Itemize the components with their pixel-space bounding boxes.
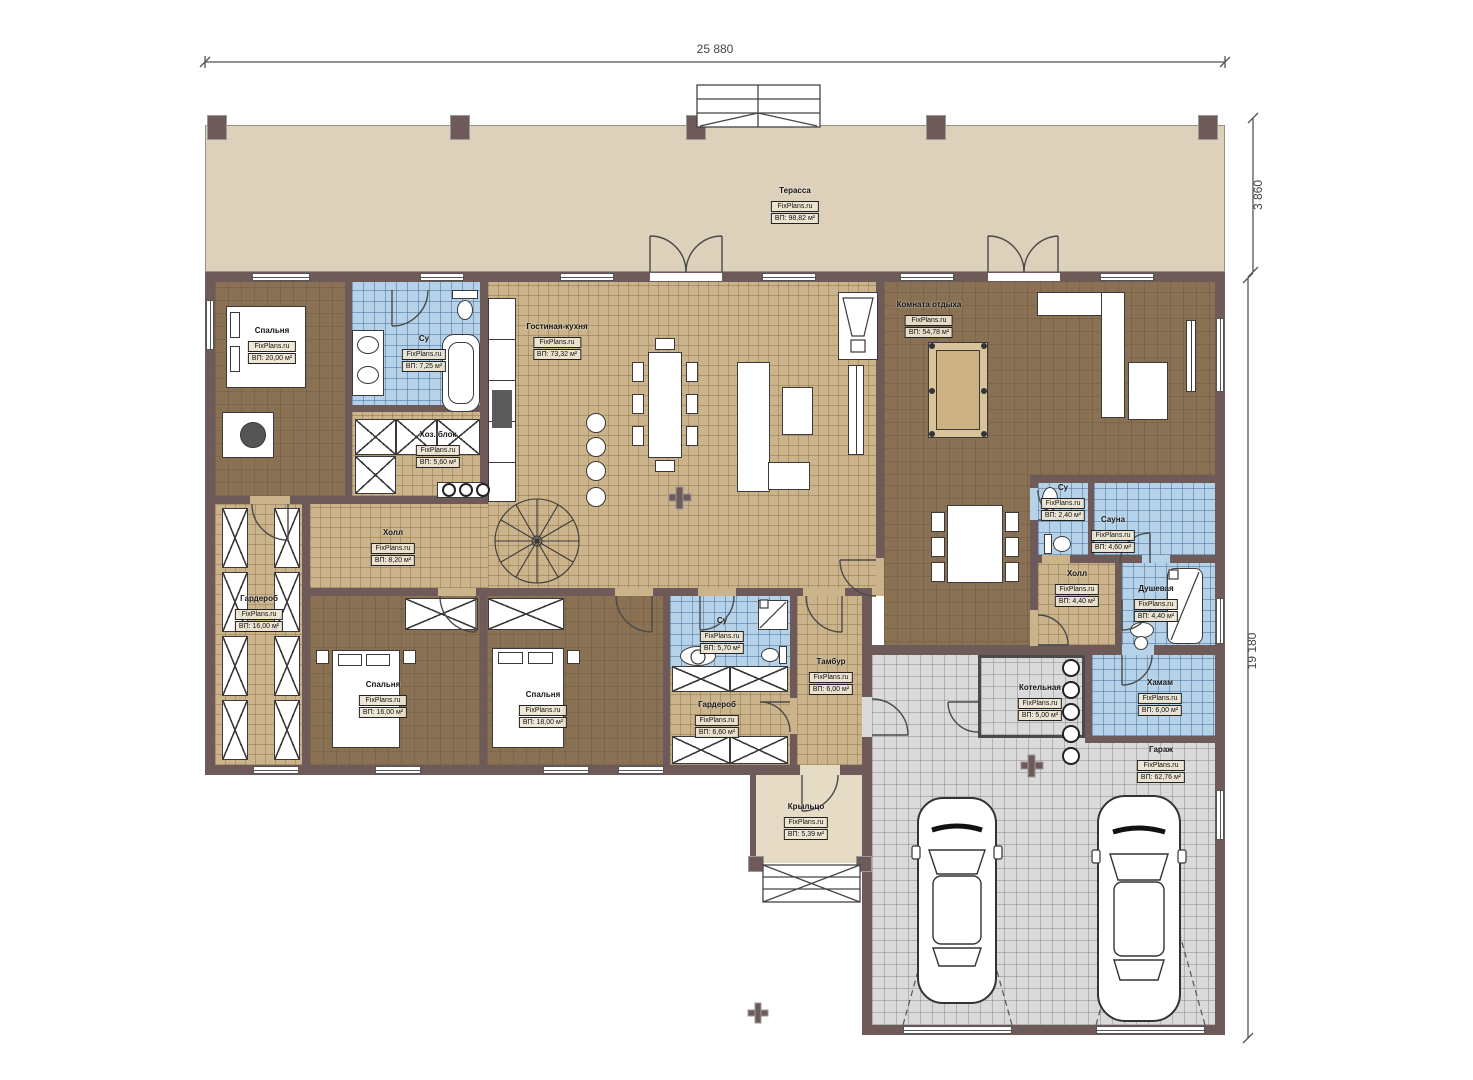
- pillow: [366, 654, 390, 666]
- room-label-wc-center: Су FixPlans.ru ВП: 5,70 м²: [700, 616, 744, 654]
- garage-door: [1096, 1026, 1205, 1034]
- room-info-box: FixPlans.ru ВП: 4,60 м²: [1091, 530, 1135, 553]
- brand-label: FixPlans.ru: [371, 543, 415, 554]
- chair: [1005, 562, 1019, 582]
- room-name: Су: [402, 334, 446, 343]
- room-area: ВП: 16,00 м²: [235, 621, 283, 632]
- room-name: Комната отдыха: [897, 300, 962, 309]
- brand-label: FixPlans.ru: [700, 631, 744, 642]
- pendant-light: [586, 487, 606, 507]
- garage-door: [903, 1026, 1012, 1034]
- room-area: ВП: 62,76 м²: [1137, 772, 1185, 783]
- chair: [1005, 512, 1019, 532]
- pendant-light: [586, 461, 606, 481]
- room-name: Душевая: [1134, 584, 1178, 593]
- wardrobe-cabinet: [730, 666, 788, 692]
- chair: [686, 362, 698, 382]
- room-info-box: FixPlans.ru ВП: 5,60 м²: [416, 445, 460, 468]
- room-label-wc-right: Су FixPlans.ru ВП: 2,40 м²: [1041, 483, 1085, 521]
- door-opening: [438, 588, 476, 596]
- brand-label: FixPlans.ru: [1041, 498, 1085, 509]
- wardrobe-cabinet: [222, 508, 248, 568]
- dimension-terrace-depth: 3 860: [1251, 173, 1265, 217]
- pendant-light: [586, 413, 606, 433]
- corner-sofa: [1101, 292, 1125, 418]
- wardrobe-cabinet: [274, 636, 300, 696]
- room-area: ВП: 98,82 м²: [771, 213, 819, 224]
- toilet-tank: [1044, 534, 1052, 554]
- terrace-door-opening: [988, 273, 1060, 281]
- brand-label: FixPlans.ru: [771, 201, 819, 212]
- room-info-box: FixPlans.ru ВП: 4,40 м²: [1134, 599, 1178, 622]
- room-label-utility: Хоз. блок FixPlans.ru ВП: 5,60 м²: [416, 430, 460, 468]
- window: [543, 766, 589, 774]
- room-info-box: FixPlans.ru ВП: 18,00 м²: [519, 705, 567, 728]
- brand-label: FixPlans.ru: [519, 705, 567, 716]
- room-area: ВП: 5,00 м²: [1018, 710, 1062, 721]
- chair: [686, 394, 698, 414]
- pendant-light: [586, 437, 606, 457]
- pillow: [528, 652, 553, 664]
- room-info-box: FixPlans.ru ВП: 5,70 м²: [700, 631, 744, 654]
- brand-label: FixPlans.ru: [784, 817, 828, 828]
- sink: [357, 336, 379, 354]
- room-name: Су: [1041, 483, 1085, 492]
- room-area: ВП: 7,25 м²: [402, 361, 446, 372]
- wall: [302, 588, 872, 596]
- door-opening: [1142, 555, 1170, 563]
- terrace-column: [207, 115, 227, 140]
- room-label-hammam: Хамам FixPlans.ru ВП: 6,00 м²: [1138, 678, 1182, 716]
- room-area: ВП: 6,60 м²: [695, 727, 739, 738]
- wardrobe-cabinet: [274, 508, 300, 568]
- window: [1216, 790, 1224, 840]
- nightstand: [567, 650, 580, 664]
- window: [900, 273, 954, 281]
- room-area: ВП: 16,00 м²: [359, 707, 407, 718]
- window: [560, 273, 614, 281]
- wardrobe-cabinet: [488, 598, 564, 630]
- oven: [492, 390, 512, 428]
- terrace-column: [1198, 115, 1218, 140]
- side-table: [1128, 362, 1168, 420]
- room-name: Спальня: [248, 326, 296, 335]
- room-info-box: FixPlans.ru ВП: 98,82 м²: [771, 201, 819, 224]
- window: [762, 273, 816, 281]
- chair: [632, 394, 644, 414]
- terrace-column: [686, 115, 706, 140]
- wall: [205, 765, 872, 775]
- room-name: Гараж: [1137, 745, 1185, 754]
- chair: [931, 562, 945, 582]
- window: [1216, 598, 1224, 644]
- room-info-box: FixPlans.ru ВП: 20,00 м²: [248, 341, 296, 364]
- room-label-shower-room: Душевая FixPlans.ru ВП: 4,40 м²: [1134, 584, 1178, 622]
- room-name: Гостиная-кухня: [526, 322, 587, 331]
- brand-label: FixPlans.ru: [359, 695, 407, 706]
- shower-tray: [758, 600, 788, 630]
- room-area: ВП: 4,40 м²: [1134, 611, 1178, 622]
- door-opening: [1030, 610, 1038, 646]
- room-area: ВП: 8,20 м²: [371, 555, 415, 566]
- wall: [663, 596, 670, 765]
- room-area: ВП: 5,60 м²: [416, 457, 460, 468]
- dimension-width-total: 25 880: [697, 42, 734, 56]
- room-name: Су: [700, 616, 744, 625]
- door-opening: [250, 496, 290, 504]
- porch-wall: [750, 775, 756, 865]
- wall: [480, 596, 487, 765]
- chair: [686, 426, 698, 446]
- room-area: ВП: 2,40 м²: [1041, 510, 1085, 521]
- billiard-table-inner: [936, 350, 980, 430]
- room-label-vestibule: Тамбур FixPlans.ru ВП: 6,00 м²: [809, 657, 853, 695]
- wardrobe-cabinet: [355, 419, 396, 455]
- toilet-tank: [779, 646, 787, 664]
- wall: [1085, 655, 1092, 743]
- stove: [437, 482, 483, 498]
- room-area: ВП: 5,70 м²: [700, 643, 744, 654]
- brand-label: FixPlans.ru: [402, 349, 446, 360]
- window: [253, 766, 299, 774]
- window: [618, 766, 664, 774]
- toilet: [761, 648, 779, 662]
- room-name: Крыльцо: [784, 802, 828, 811]
- room-info-box: FixPlans.ru ВП: 2,40 м²: [1041, 498, 1085, 521]
- door-opening: [1042, 555, 1070, 563]
- room-info-box: FixPlans.ru ВП: 8,20 м²: [371, 543, 415, 566]
- door-opening: [1030, 488, 1038, 520]
- room-area: ВП: 73,32 м²: [533, 349, 581, 360]
- room-info-box: FixPlans.ru ВП: 54,78 м²: [905, 315, 953, 338]
- room-name: Сауна: [1091, 515, 1135, 524]
- brand-label: FixPlans.ru: [905, 315, 953, 326]
- room-info-box: FixPlans.ru ВП: 16,00 м²: [235, 609, 283, 632]
- wall: [480, 282, 488, 504]
- room-label-hall-right: Холл FixPlans.ru ВП: 4,40 м²: [1055, 569, 1099, 607]
- room-info-box: FixPlans.ru ВП: 62,76 м²: [1137, 760, 1185, 783]
- room-label-garage: Гараж FixPlans.ru ВП: 62,76 м²: [1137, 745, 1185, 783]
- window: [206, 300, 214, 350]
- room-label-terrace: Терасса FixPlans.ru ВП: 98,82 м²: [771, 186, 819, 224]
- room-label-boiler-room: Котельная FixPlans.ru ВП: 5,00 м²: [1018, 683, 1062, 721]
- room-name: Гардероб: [235, 594, 283, 603]
- brand-label: FixPlans.ru: [695, 715, 739, 726]
- door-opening: [800, 765, 840, 775]
- wardrobe-cabinet: [222, 636, 248, 696]
- sink-pedestal: [1134, 636, 1148, 650]
- chair: [632, 362, 644, 382]
- wall: [302, 504, 310, 765]
- room-label-lounge: Комната отдыха FixPlans.ru ВП: 54,78 м²: [897, 300, 962, 338]
- brand-label: FixPlans.ru: [533, 337, 581, 348]
- room-label-bedroom-2: Спальня FixPlans.ru ВП: 16,00 м²: [359, 680, 407, 718]
- wall: [1115, 563, 1122, 655]
- wardrobe-cabinet: [730, 736, 788, 764]
- tv-unit: [1186, 320, 1196, 392]
- terrace-door-opening: [650, 273, 722, 281]
- room-info-box: FixPlans.ru ВП: 6,60 м²: [695, 715, 739, 738]
- room-info-box: FixPlans.ru ВП: 7,25 м²: [402, 349, 446, 372]
- brand-label: FixPlans.ru: [1091, 530, 1135, 541]
- room-label-wardrobe-center: Гардероб FixPlans.ru ВП: 6,60 м²: [695, 700, 739, 738]
- brand-label: FixPlans.ru: [235, 609, 283, 620]
- wardrobe-cabinet: [672, 666, 730, 692]
- porch-steps: [763, 865, 860, 902]
- room-name: Гардероб: [695, 700, 739, 709]
- room-name: Спальня: [359, 680, 407, 689]
- room-name: Спальня: [519, 690, 567, 699]
- room-area: ВП: 4,40 м²: [1055, 596, 1099, 607]
- room-info-box: FixPlans.ru ВП: 4,40 м²: [1055, 584, 1099, 607]
- room-area: ВП: 6,00 м²: [1138, 705, 1182, 716]
- toilet: [457, 300, 473, 320]
- toilet: [1053, 536, 1071, 552]
- window: [375, 766, 421, 774]
- brand-label: FixPlans.ru: [1055, 584, 1099, 595]
- room-label-wardrobe-left: Гардероб FixPlans.ru ВП: 16,00 м²: [235, 594, 283, 632]
- terrace-floor: [205, 125, 1225, 272]
- door-opening: [862, 697, 872, 737]
- terrace-column: [450, 115, 470, 140]
- room-label-bedroom-3: Спальня FixPlans.ru ВП: 18,00 м²: [519, 690, 567, 728]
- tv-unit: [848, 365, 864, 455]
- room-label-living-kitchen: Гостиная-кухня FixPlans.ru ВП: 73,32 м²: [526, 322, 587, 360]
- room-info-box: FixPlans.ru ВП: 16,00 м²: [359, 695, 407, 718]
- wall: [872, 645, 1225, 655]
- nightstand: [403, 650, 416, 664]
- chair: [655, 338, 675, 350]
- wardrobe-cabinet: [355, 456, 396, 494]
- room-area: ВП: 18,00 м²: [519, 717, 567, 728]
- room-label-bedroom-1: Спальня FixPlans.ru ВП: 20,00 м²: [248, 326, 296, 364]
- coffee-table: [782, 387, 813, 435]
- room-info-box: FixPlans.ru ВП: 73,32 м²: [533, 337, 581, 360]
- porch-column: [748, 856, 764, 872]
- room-name: Холл: [371, 528, 415, 537]
- room-info-box: FixPlans.ru ВП: 5,39 м²: [784, 817, 828, 840]
- chair: [655, 460, 675, 472]
- room-info-box: FixPlans.ru ВП: 5,00 м²: [1018, 698, 1062, 721]
- room-label-sauna: Сауна FixPlans.ru ВП: 4,60 м²: [1091, 515, 1135, 553]
- wardrobe-cabinet: [222, 700, 248, 760]
- room-info-box: FixPlans.ru ВП: 6,00 м²: [809, 672, 853, 695]
- brand-label: FixPlans.ru: [1134, 599, 1178, 610]
- window: [1216, 318, 1224, 392]
- chair: [931, 537, 945, 557]
- room-area: ВП: 54,78 м²: [905, 327, 953, 338]
- door-opening: [790, 698, 797, 734]
- fireplace: [838, 292, 878, 360]
- dining-table: [947, 505, 1003, 583]
- chair: [632, 426, 644, 446]
- room-name: Холл: [1055, 569, 1099, 578]
- room-name: Терасса: [771, 186, 819, 195]
- door-opening: [876, 558, 884, 596]
- sofa: [737, 362, 770, 492]
- wall: [790, 596, 797, 775]
- room-name: Тамбур: [809, 657, 853, 666]
- brand-label: FixPlans.ru: [809, 672, 853, 683]
- bathtub-inner: [448, 342, 474, 404]
- wall: [345, 282, 352, 503]
- room-name: Хамам: [1138, 678, 1182, 687]
- window: [252, 273, 310, 281]
- room-label-hall: Холл FixPlans.ru ВП: 8,20 м²: [371, 528, 415, 566]
- nightstand: [316, 650, 329, 664]
- window: [1100, 273, 1154, 281]
- porch-column: [856, 856, 872, 872]
- chair: [931, 512, 945, 532]
- room-info-box: FixPlans.ru ВП: 6,00 м²: [1138, 693, 1182, 716]
- room-name: Хоз. блок: [416, 430, 460, 439]
- wall: [1085, 736, 1215, 743]
- brand-label: FixPlans.ru: [248, 341, 296, 352]
- wardrobe-cabinet: [274, 700, 300, 760]
- wardrobe-cabinet: [405, 598, 478, 630]
- door-opening: [698, 588, 736, 596]
- wall: [1030, 475, 1215, 483]
- brand-label: FixPlans.ru: [1137, 760, 1185, 771]
- door-opening: [615, 588, 653, 596]
- room-area: ВП: 4,60 м²: [1091, 542, 1135, 553]
- room-area: ВП: 5,39 м²: [784, 829, 828, 840]
- dimension-height-total: 19 180: [1245, 627, 1259, 675]
- wardrobe-cabinet: [672, 736, 730, 764]
- desk-chair: [240, 422, 266, 448]
- pillow: [338, 654, 362, 666]
- room-label-porch: Крыльцо FixPlans.ru ВП: 5,39 м²: [784, 802, 828, 840]
- pillow: [498, 652, 523, 664]
- toilet-tank: [452, 290, 478, 299]
- chair: [1005, 537, 1019, 557]
- room-label-wc-main: Су FixPlans.ru ВП: 7,25 м²: [402, 334, 446, 372]
- dining-table: [648, 352, 682, 458]
- wall: [862, 595, 872, 1035]
- brand-label: FixPlans.ru: [1138, 693, 1182, 704]
- sofa-chaise: [768, 462, 810, 490]
- pillow: [230, 346, 240, 372]
- room-name: Котельная: [1018, 683, 1062, 692]
- brand-label: FixPlans.ru: [1018, 698, 1062, 709]
- sink: [357, 366, 379, 384]
- room-area: ВП: 6,00 м²: [809, 684, 853, 695]
- pillow: [230, 312, 240, 338]
- brand-label: FixPlans.ru: [416, 445, 460, 456]
- door-opening: [803, 588, 845, 596]
- window: [420, 273, 464, 281]
- terrace-column: [926, 115, 946, 140]
- room-area: ВП: 20,00 м²: [248, 353, 296, 364]
- floor-plan: 25 880 3 860 19 180: [0, 0, 1473, 1080]
- terrace-stairs: [697, 85, 820, 127]
